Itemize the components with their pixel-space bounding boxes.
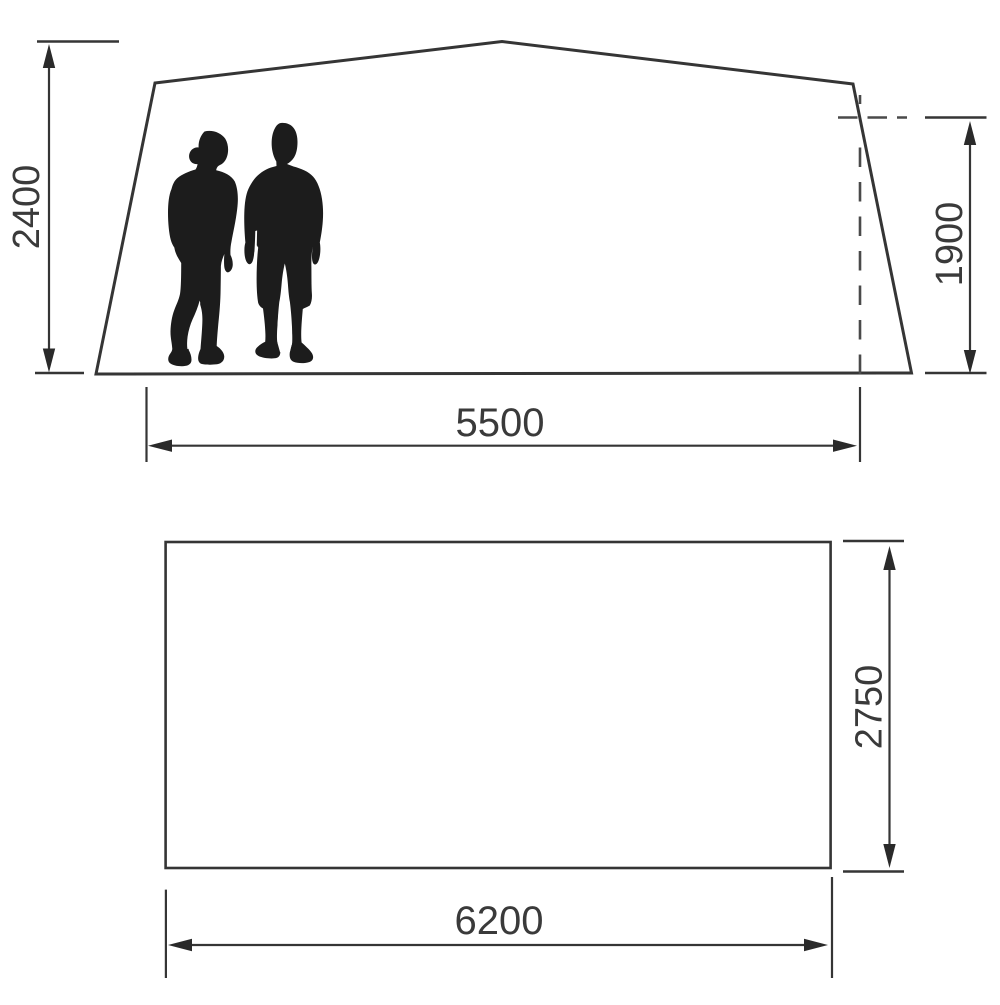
svg-text:5500: 5500 — [456, 401, 545, 445]
svg-text:1900: 1900 — [929, 202, 971, 287]
svg-text:6200: 6200 — [455, 899, 544, 943]
svg-text:2750: 2750 — [848, 665, 890, 750]
svg-text:2400: 2400 — [6, 165, 48, 250]
